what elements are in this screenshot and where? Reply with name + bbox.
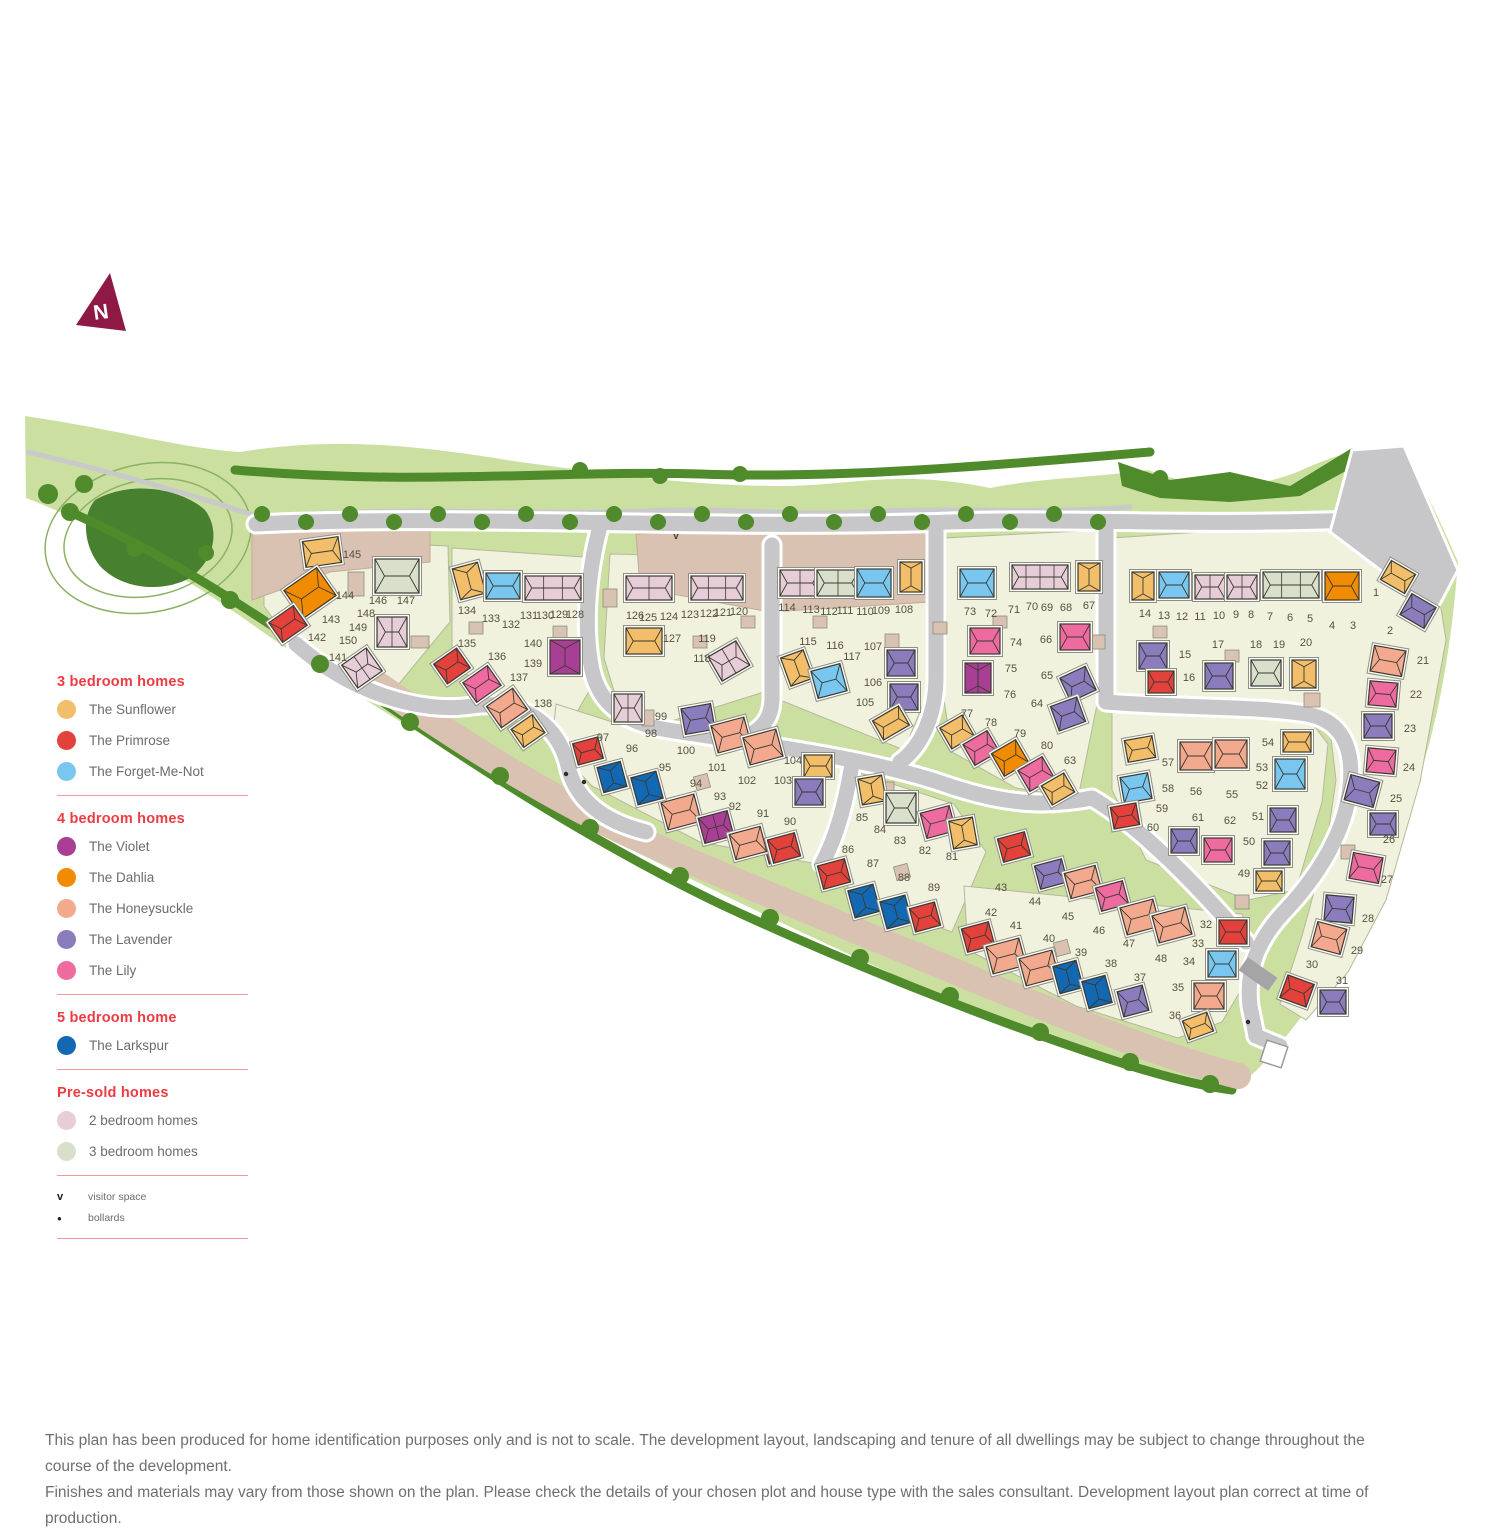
plot-number: 41 bbox=[1010, 920, 1022, 932]
tree-icon bbox=[311, 655, 329, 673]
road bbox=[256, 520, 1352, 524]
plot-number: 28 bbox=[1362, 913, 1374, 925]
house-fmn bbox=[1157, 570, 1192, 601]
tree-icon bbox=[1121, 1053, 1139, 1071]
plot-number: 130 bbox=[536, 610, 554, 622]
garage-block bbox=[553, 626, 567, 638]
plot-number: 63 bbox=[1064, 755, 1076, 767]
plot-number: 117 bbox=[843, 651, 861, 663]
house-lily bbox=[1365, 678, 1400, 710]
plot-number: 92 bbox=[729, 801, 741, 813]
plot-number: 50 bbox=[1243, 836, 1255, 848]
garage-block bbox=[1304, 693, 1320, 707]
house-lavender bbox=[885, 648, 918, 679]
legend-item-label: 2 bedroom homes bbox=[89, 1113, 198, 1128]
plot-number: 90 bbox=[784, 816, 796, 828]
house-primrose bbox=[1107, 800, 1142, 832]
plot-number: 106 bbox=[864, 677, 882, 689]
plot-number: 4 bbox=[1329, 620, 1335, 632]
plot-number: 31 bbox=[1336, 975, 1348, 987]
legend-symbol-label: visitor space bbox=[88, 1191, 146, 1203]
plot-number: 142 bbox=[308, 632, 326, 644]
plot-number: 97 bbox=[597, 732, 609, 744]
plot-number: 29 bbox=[1351, 945, 1363, 957]
plot-number: 69 bbox=[1041, 602, 1053, 614]
north-arrow-label: N bbox=[92, 300, 110, 325]
tree-icon bbox=[1152, 470, 1168, 486]
plot-number: 57 bbox=[1162, 757, 1174, 769]
plot-number: 137 bbox=[510, 672, 528, 684]
plot-number: 43 bbox=[995, 882, 1007, 894]
plot-number: 30 bbox=[1306, 959, 1318, 971]
disclaimer-line-1: This plan has been produced for home ide… bbox=[45, 1428, 1375, 1480]
house-presold3 bbox=[1249, 658, 1284, 689]
house-lavender bbox=[793, 777, 826, 808]
legend-item: The Sunflower bbox=[57, 700, 257, 719]
plot-number: 120 bbox=[730, 606, 748, 618]
plot-number: 33 bbox=[1192, 938, 1204, 950]
plot-number: 58 bbox=[1162, 783, 1174, 795]
plot-number: 108 bbox=[895, 604, 913, 616]
plot-number: 136 bbox=[488, 651, 506, 663]
plot-number: 38 bbox=[1105, 958, 1117, 970]
north-arrow: N bbox=[60, 255, 150, 350]
legend-item: 3 bedroom homes bbox=[57, 1142, 257, 1161]
tree-icon bbox=[38, 484, 58, 504]
plot-number: 44 bbox=[1029, 896, 1041, 908]
tree-icon bbox=[761, 909, 779, 927]
plot-number: 113 bbox=[802, 604, 820, 616]
plot-number: 145 bbox=[343, 549, 361, 561]
plot-number: 45 bbox=[1062, 911, 1074, 923]
plot-number: 7 bbox=[1267, 611, 1273, 623]
tree-icon bbox=[518, 506, 534, 522]
plot-number: 8 bbox=[1248, 609, 1254, 621]
bollard-marker bbox=[564, 772, 568, 776]
tree-icon bbox=[650, 514, 666, 530]
plot-number: 149 bbox=[349, 622, 367, 634]
plot-number: 54 bbox=[1262, 737, 1274, 749]
tree-icon bbox=[386, 514, 402, 530]
house-lavender bbox=[1203, 661, 1236, 692]
tree-icon bbox=[474, 514, 490, 530]
plot-number: 83 bbox=[894, 835, 906, 847]
house-honeysuckle bbox=[1367, 643, 1409, 680]
house-primrose bbox=[1217, 918, 1250, 947]
house-lavender bbox=[1318, 988, 1349, 1017]
visitor-space-icon: v bbox=[57, 1191, 71, 1203]
plot-number: 39 bbox=[1075, 947, 1087, 959]
plot-number: 132 bbox=[502, 619, 520, 631]
legend-heading: 3 bedroom homes bbox=[57, 674, 257, 690]
plot-number: 88 bbox=[898, 872, 910, 884]
plot-number: 86 bbox=[842, 844, 854, 856]
plot-number: 115 bbox=[799, 636, 817, 648]
garage-block bbox=[1053, 939, 1070, 956]
house-lavender bbox=[1362, 712, 1395, 741]
plot-number: 74 bbox=[1010, 637, 1022, 649]
legend-symbol-label: bollards bbox=[88, 1212, 125, 1224]
disclaimer-line-2: Finishes and materials may vary from tho… bbox=[45, 1480, 1375, 1532]
plot-number: 21 bbox=[1417, 655, 1429, 667]
tree-icon bbox=[851, 949, 869, 967]
plot-number: 87 bbox=[867, 858, 879, 870]
garage-block bbox=[1153, 626, 1167, 638]
house-sunflower bbox=[946, 814, 980, 852]
house-lily bbox=[1202, 836, 1235, 865]
plot-number: 82 bbox=[919, 845, 931, 857]
legend-heading: 4 bedroom homes bbox=[57, 811, 257, 827]
plot-number: 19 bbox=[1273, 639, 1285, 651]
legend-item-label: The Violet bbox=[89, 839, 150, 854]
plot-number: 18 bbox=[1250, 639, 1262, 651]
house-honeysuckle bbox=[1192, 981, 1227, 1012]
plot-number: 52 bbox=[1256, 780, 1268, 792]
plot-number: 119 bbox=[698, 633, 716, 645]
plot-number: 56 bbox=[1190, 786, 1202, 798]
tree-icon bbox=[782, 506, 798, 522]
plot-number: 101 bbox=[708, 762, 726, 774]
bollard-marker bbox=[1246, 1020, 1250, 1024]
plot-number: 147 bbox=[397, 595, 415, 607]
legend-item: The Forget-Me-Not bbox=[57, 762, 257, 781]
plot-number: 111 bbox=[837, 605, 854, 617]
plot-number: 25 bbox=[1390, 793, 1402, 805]
tree-icon bbox=[1046, 506, 1062, 522]
legend-divider bbox=[57, 795, 248, 796]
legend-swatch-icon bbox=[57, 868, 76, 887]
plot-number: 35 bbox=[1172, 982, 1184, 994]
plot-number: 22 bbox=[1410, 689, 1422, 701]
plot-number: 17 bbox=[1212, 639, 1224, 651]
plot-number: 26 bbox=[1383, 834, 1395, 846]
plot-number: 140 bbox=[524, 638, 542, 650]
house-sunflower bbox=[1281, 730, 1314, 755]
house-presold2 bbox=[1225, 573, 1260, 602]
house-sunflower bbox=[802, 753, 835, 780]
legend-swatch-icon bbox=[57, 1142, 76, 1161]
legend-item-label: The Sunflower bbox=[89, 702, 176, 717]
house-presold3 bbox=[1261, 570, 1322, 601]
legend-swatch-icon bbox=[57, 1111, 76, 1130]
plot-number: 42 bbox=[985, 907, 997, 919]
house-sunflower bbox=[624, 626, 665, 657]
plot-number: 60 bbox=[1147, 822, 1159, 834]
plot-number: 72 bbox=[985, 608, 997, 620]
tree-icon bbox=[75, 475, 93, 493]
house-fmn bbox=[1206, 949, 1239, 980]
legend-divider bbox=[57, 1238, 248, 1239]
house-sunflower bbox=[1254, 869, 1285, 894]
plot-number: 77 bbox=[961, 708, 973, 720]
plot-number: 138 bbox=[534, 698, 552, 710]
house-violet bbox=[963, 661, 994, 696]
house-sunflower bbox=[300, 534, 345, 570]
plot-number: 134 bbox=[458, 605, 476, 617]
plot-number: 107 bbox=[864, 641, 882, 653]
plot-number: 118 bbox=[693, 653, 711, 665]
legend-item-label: The Lily bbox=[89, 963, 136, 978]
house-lily bbox=[1058, 622, 1093, 653]
plot-number: 64 bbox=[1031, 698, 1043, 710]
plot-number: 40 bbox=[1043, 933, 1055, 945]
tree-icon bbox=[1002, 514, 1018, 530]
house-presold2 bbox=[523, 574, 584, 603]
plot-number: 5 bbox=[1307, 613, 1313, 625]
legend-symbol-row: vvisitor space bbox=[57, 1191, 257, 1203]
legend-item: The Honeysuckle bbox=[57, 899, 257, 918]
plot-number: 14 bbox=[1139, 608, 1151, 620]
plot-number: 103 bbox=[774, 775, 792, 787]
plot-number: 79 bbox=[1014, 728, 1026, 740]
garage-block bbox=[1091, 635, 1105, 649]
legend-swatch-icon bbox=[57, 1036, 76, 1055]
tree-icon bbox=[491, 767, 509, 785]
house-presold3 bbox=[373, 557, 422, 596]
plot-number: 66 bbox=[1040, 634, 1052, 646]
plot-number: 27 bbox=[1381, 874, 1393, 886]
disclaimer: This plan has been produced for home ide… bbox=[45, 1428, 1375, 1532]
tree-icon bbox=[694, 506, 710, 522]
legend-swatch-icon bbox=[57, 762, 76, 781]
tree-icon bbox=[652, 468, 668, 484]
plot-number: 23 bbox=[1404, 723, 1416, 735]
legend-item: The Dahlia bbox=[57, 868, 257, 887]
legend-item: The Larkspur bbox=[57, 1036, 257, 1055]
plot-number: 100 bbox=[677, 745, 695, 757]
legend-swatch-icon bbox=[57, 899, 76, 918]
plot-number: 55 bbox=[1226, 789, 1238, 801]
plot-number: 32 bbox=[1200, 919, 1212, 931]
plot-number: 127 bbox=[663, 633, 681, 645]
bollard-marker bbox=[582, 780, 586, 784]
house-lavender bbox=[1169, 827, 1200, 856]
bollard-icon: ● bbox=[57, 1214, 71, 1223]
tree-icon bbox=[1090, 514, 1106, 530]
legend-heading: 5 bedroom home bbox=[57, 1010, 257, 1026]
tree-icon bbox=[562, 514, 578, 530]
plot-number: 76 bbox=[1004, 689, 1016, 701]
legend-item-label: The Dahlia bbox=[89, 870, 154, 885]
plot-number: 114 bbox=[778, 602, 796, 614]
house-presold3 bbox=[884, 791, 919, 826]
legend-divider bbox=[57, 994, 248, 995]
plot-number: 48 bbox=[1155, 953, 1167, 965]
plot-number: 133 bbox=[482, 613, 500, 625]
plot-number: 49 bbox=[1238, 868, 1250, 880]
legend-swatch-icon bbox=[57, 837, 76, 856]
legend-swatch-icon bbox=[57, 930, 76, 949]
tree-icon bbox=[1201, 1075, 1219, 1093]
plot-number: 109 bbox=[872, 605, 890, 617]
tree-icon bbox=[941, 987, 959, 1005]
tree-icon bbox=[958, 506, 974, 522]
plot-number: 20 bbox=[1300, 637, 1312, 649]
house-violet bbox=[548, 638, 583, 677]
tree-icon bbox=[606, 506, 622, 522]
plot-number: 46 bbox=[1093, 925, 1105, 937]
plot-number: 104 bbox=[784, 755, 802, 767]
plot-number: 116 bbox=[826, 640, 844, 652]
plot-number: 124 bbox=[660, 611, 678, 623]
house-sunflower bbox=[898, 560, 925, 595]
tree-icon bbox=[738, 514, 754, 530]
house-presold2 bbox=[1193, 573, 1228, 602]
plot-number: 122 bbox=[700, 608, 718, 620]
plot-number: 93 bbox=[714, 791, 726, 803]
plot-number: 80 bbox=[1041, 740, 1053, 752]
plot-number: 98 bbox=[645, 728, 657, 740]
plot-number: 53 bbox=[1256, 762, 1268, 774]
plot-number: 131 bbox=[520, 610, 538, 622]
house-sunflower bbox=[1290, 658, 1319, 691]
legend-item-label: The Lavender bbox=[89, 932, 172, 947]
plot-number: 9 bbox=[1233, 609, 1239, 621]
tree-icon bbox=[198, 545, 214, 561]
plot-number: 73 bbox=[964, 606, 976, 618]
plot-number: 12 bbox=[1176, 611, 1188, 623]
plot-number: 143 bbox=[322, 614, 340, 626]
garage-block bbox=[933, 622, 947, 634]
tree-icon bbox=[581, 819, 599, 837]
plot-number: 65 bbox=[1041, 670, 1053, 682]
plot-number: 13 bbox=[1158, 610, 1170, 622]
tree-icon bbox=[1031, 1023, 1049, 1041]
legend: 3 bedroom homesThe SunflowerThe Primrose… bbox=[57, 674, 257, 1254]
tree-icon bbox=[401, 713, 419, 731]
plot-number: 91 bbox=[757, 808, 769, 820]
house-lavender bbox=[1262, 839, 1293, 868]
plot-number: 67 bbox=[1083, 600, 1095, 612]
plot-number: 1 bbox=[1373, 587, 1379, 599]
tree-icon bbox=[254, 506, 270, 522]
plot-number: 68 bbox=[1060, 602, 1072, 614]
plot-number: 126 bbox=[626, 610, 644, 622]
plot-number: 135 bbox=[458, 638, 476, 650]
plot-number: 102 bbox=[738, 775, 756, 787]
legend-heading: Pre-sold homes bbox=[57, 1085, 257, 1101]
house-honeysuckle bbox=[1213, 738, 1250, 771]
plot-number: 94 bbox=[690, 778, 702, 790]
tree-icon bbox=[914, 514, 930, 530]
plot-number: 85 bbox=[856, 812, 868, 824]
house-lavender bbox=[1268, 806, 1299, 835]
plot-number: 6 bbox=[1287, 612, 1293, 624]
house-fmn bbox=[1273, 757, 1308, 792]
tree-icon bbox=[342, 506, 358, 522]
legend-item-label: The Primrose bbox=[89, 733, 170, 748]
tree-icon bbox=[870, 506, 886, 522]
plot-number: 105 bbox=[856, 697, 874, 709]
plot-number: 47 bbox=[1123, 938, 1135, 950]
plot-number: 59 bbox=[1156, 803, 1168, 815]
plot-number: 96 bbox=[626, 743, 638, 755]
plot-number: 139 bbox=[524, 658, 542, 670]
legend-swatch-icon bbox=[57, 961, 76, 980]
garage-block bbox=[1235, 895, 1249, 909]
plot-number: 51 bbox=[1252, 811, 1264, 823]
legend-item-label: The Honeysuckle bbox=[89, 901, 193, 916]
legend-item: The Primrose bbox=[57, 731, 257, 750]
plot-number: 62 bbox=[1224, 815, 1236, 827]
plot-number: 3 bbox=[1350, 620, 1356, 632]
house-primrose bbox=[1146, 669, 1177, 696]
house-fmn bbox=[855, 567, 894, 600]
plot-number: 84 bbox=[874, 824, 886, 836]
plot-number: 141 bbox=[329, 652, 347, 664]
legend-item: The Lily bbox=[57, 961, 257, 980]
house-dahlia bbox=[1323, 570, 1362, 603]
tree-icon bbox=[572, 462, 588, 478]
plot-number: 148 bbox=[357, 608, 375, 620]
garage-block bbox=[603, 589, 617, 607]
tree-icon bbox=[221, 591, 239, 609]
house-lily bbox=[968, 626, 1003, 657]
plot-number: 89 bbox=[928, 882, 940, 894]
plot-number: 144 bbox=[336, 590, 354, 602]
plot-number: 123 bbox=[681, 609, 699, 621]
legend-swatch-icon bbox=[57, 700, 76, 719]
house-fmn bbox=[484, 571, 523, 602]
plot-number: 61 bbox=[1192, 812, 1204, 824]
tree-icon bbox=[1242, 478, 1258, 494]
house-presold2 bbox=[1010, 563, 1071, 592]
house-lavender bbox=[1137, 641, 1170, 672]
plot-number: 78 bbox=[985, 717, 997, 729]
tree-icon bbox=[826, 514, 842, 530]
legend-item: The Violet bbox=[57, 837, 257, 856]
plot-number: 99 bbox=[655, 711, 667, 723]
legend-item: 2 bedroom homes bbox=[57, 1111, 257, 1130]
legend-item: The Lavender bbox=[57, 930, 257, 949]
plot-number: 16 bbox=[1183, 672, 1195, 684]
tree-icon bbox=[126, 539, 144, 557]
house-honeysuckle bbox=[1178, 740, 1215, 773]
plot-number: 128 bbox=[566, 609, 584, 621]
plot-number: 95 bbox=[659, 762, 671, 774]
house-presold2 bbox=[375, 615, 410, 650]
legend-swatch-icon bbox=[57, 731, 76, 750]
plot-number: 10 bbox=[1213, 610, 1225, 622]
legend-item-label: The Forget-Me-Not bbox=[89, 764, 204, 779]
plot-number: 81 bbox=[946, 851, 958, 863]
tree-icon bbox=[732, 466, 748, 482]
tree-icon bbox=[298, 514, 314, 530]
legend-divider bbox=[57, 1175, 248, 1176]
house-sunflower bbox=[1121, 733, 1158, 765]
plot-number: 150 bbox=[339, 635, 357, 647]
legend-item-label: The Larkspur bbox=[89, 1038, 169, 1053]
plot-number: 110 bbox=[856, 606, 874, 618]
house-presold2 bbox=[689, 574, 746, 603]
plot-number: 34 bbox=[1183, 956, 1195, 968]
plot-number: 15 bbox=[1179, 649, 1191, 661]
plot-number: 112 bbox=[820, 606, 838, 618]
house-sunflower bbox=[1076, 561, 1103, 594]
house-presold2 bbox=[612, 692, 645, 725]
house-sunflower bbox=[1130, 570, 1157, 603]
house-fmn bbox=[958, 567, 997, 600]
plot-number: 70 bbox=[1026, 601, 1038, 613]
tree-icon bbox=[671, 867, 689, 885]
house-presold2 bbox=[624, 574, 675, 603]
plot-number: 75 bbox=[1005, 663, 1017, 675]
plot-number: 24 bbox=[1403, 762, 1415, 774]
plot-number: 71 bbox=[1008, 604, 1020, 616]
legend-item-label: 3 bedroom homes bbox=[89, 1144, 198, 1159]
plot-number: 36 bbox=[1169, 1010, 1181, 1022]
plot-number: 37 bbox=[1134, 972, 1146, 984]
